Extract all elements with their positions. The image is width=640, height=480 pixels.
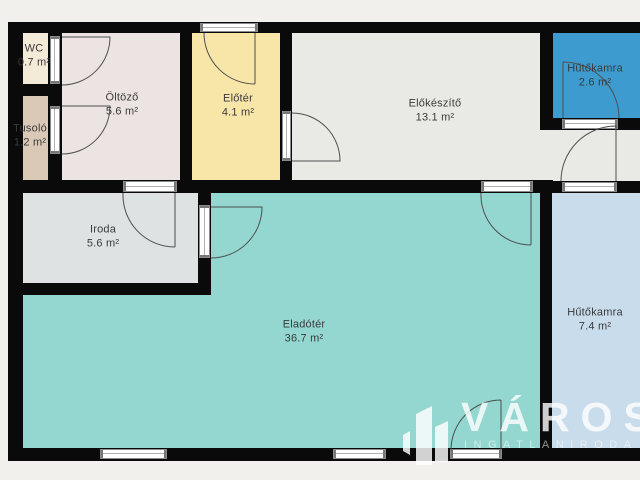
room-elokeszito-ext	[540, 130, 640, 181]
opening-end-cap	[255, 24, 257, 31]
wall	[8, 22, 23, 461]
room-area: 4.1 m²	[222, 106, 254, 120]
room-name: Eladótér	[283, 318, 326, 332]
tusolo-door	[50, 106, 60, 154]
buildings-icon	[399, 401, 453, 465]
opening-end-cap	[51, 81, 59, 83]
agency-logo-text: VÁROSI INGATLANIRODA	[461, 397, 640, 451]
agency-logo-watermark: VÁROSI INGATLANIRODA	[399, 397, 640, 465]
room-area: 36.7 m²	[283, 332, 326, 346]
wall	[540, 22, 553, 130]
oltozo-iroda-door	[123, 181, 177, 192]
opening-glazing-line	[202, 27, 256, 28]
room-area: 2.6 m²	[567, 76, 623, 90]
floor-plan: WC0.7 m²Tusoló1.2 m²Öltöző5.6 m²Előtér4.…	[0, 0, 640, 480]
opening-glazing-line	[564, 123, 616, 124]
room-name: Hűtőkamra	[567, 306, 623, 320]
room-label-oltozo: Öltöző5.6 m²	[106, 91, 139, 120]
opening-glazing-line	[102, 453, 165, 454]
opening-glazing-line	[54, 38, 55, 82]
opening-end-cap	[200, 255, 209, 257]
iroda-eladoter-door	[199, 205, 210, 258]
opening-end-cap	[482, 182, 484, 191]
room-area: 0.7 m²	[18, 56, 50, 70]
room-name: Iroda	[87, 223, 119, 237]
hutokamra-kis-door	[562, 119, 618, 129]
room-label-hutokamra-kis: Hűtőkamra2.6 m²	[567, 62, 623, 91]
opening-glazing-line	[483, 186, 531, 187]
wc-door	[50, 36, 60, 84]
room-area: 7.4 m²	[567, 320, 623, 334]
opening-end-cap	[200, 206, 209, 208]
opening-end-cap	[283, 112, 290, 114]
opening-end-cap	[51, 107, 59, 109]
opening-end-cap	[101, 450, 103, 458]
room-area: 13.1 m²	[409, 111, 462, 125]
opening-glazing-line	[125, 186, 175, 187]
opening-end-cap	[383, 450, 385, 458]
room-label-elokeszito: Előkészítő13.1 m²	[409, 97, 462, 126]
elokeszito-eladoter-door	[481, 181, 533, 192]
room-name: Hűtőkamra	[567, 62, 623, 76]
agency-tagline: INGATLANIRODA	[461, 439, 640, 451]
room-name: Öltöző	[106, 91, 139, 105]
agency-name: VÁROSI	[461, 397, 640, 438]
opening-end-cap	[563, 183, 565, 191]
room-label-eloter: Előtér4.1 m²	[222, 92, 254, 121]
wall	[8, 283, 211, 295]
window-mid	[333, 449, 386, 459]
opening-end-cap	[530, 182, 532, 191]
opening-end-cap	[124, 182, 126, 191]
opening-glazing-line	[204, 207, 205, 256]
window-left	[100, 449, 167, 459]
opening-glazing-line	[335, 453, 384, 454]
opening-end-cap	[283, 158, 290, 160]
room-name: WC	[18, 42, 50, 56]
eloter-elokeszito-door	[282, 111, 291, 161]
room-label-iroda: Iroda5.6 m²	[87, 223, 119, 252]
opening-end-cap	[614, 183, 616, 191]
room-area: 5.6 m²	[87, 237, 119, 251]
wall	[180, 33, 192, 180]
opening-glazing-line	[286, 113, 287, 159]
wall	[23, 84, 48, 96]
room-name: Tusoló	[13, 122, 47, 136]
opening-end-cap	[51, 151, 59, 153]
room-eladoter-ext	[23, 295, 211, 448]
opening-glazing-line	[564, 186, 615, 187]
room-label-tusolo: Tusoló1.2 m²	[13, 122, 47, 151]
room-area: 5.6 m²	[106, 105, 139, 119]
wall	[8, 180, 553, 193]
room-name: Előtér	[222, 92, 254, 106]
opening-glazing-line	[54, 108, 55, 152]
opening-end-cap	[174, 182, 176, 191]
room-name: Előkészítő	[409, 97, 462, 111]
room-label-hutokamra-nagy: Hűtőkamra7.4 m²	[567, 306, 623, 335]
opening-end-cap	[563, 120, 565, 128]
room-label-wc: WC0.7 m²	[18, 42, 50, 71]
opening-end-cap	[51, 37, 59, 39]
opening-end-cap	[615, 120, 617, 128]
room-area: 1.2 m²	[13, 136, 47, 150]
hutokamra-nagy-door	[562, 182, 617, 192]
entrance-door-top	[200, 23, 258, 32]
opening-end-cap	[334, 450, 336, 458]
opening-end-cap	[201, 24, 203, 31]
room-label-eladoter: Eladótér36.7 m²	[283, 318, 326, 347]
opening-end-cap	[164, 450, 166, 458]
